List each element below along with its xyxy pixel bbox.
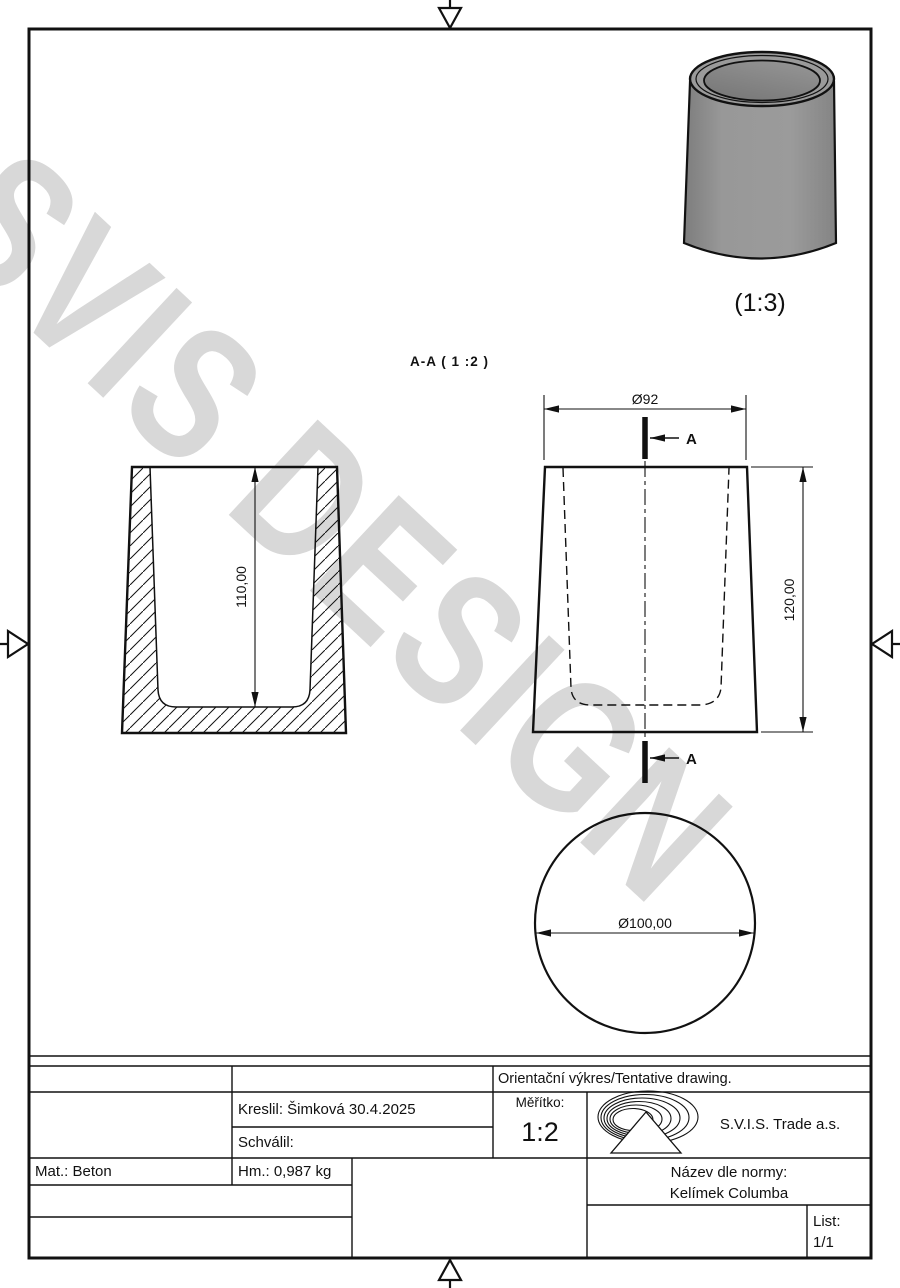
tentative-note: Orientační výkres/Tentative drawing. bbox=[498, 1066, 868, 1092]
sheet-label: List: bbox=[813, 1212, 868, 1232]
sheet-value: 1/1 bbox=[813, 1233, 868, 1253]
dim-bottom-diameter: Ø100,00 bbox=[536, 915, 754, 937]
front-view: A A Ø92 120,00 bbox=[533, 391, 813, 783]
material: Mat.: Beton bbox=[35, 1158, 225, 1185]
section-view: 110,00 bbox=[122, 467, 346, 733]
section-cut-line: A A bbox=[645, 417, 697, 783]
scale-value: 1:2 bbox=[494, 1112, 586, 1154]
company-name: S.V.I.S. Trade a.s. bbox=[695, 1092, 865, 1158]
svg-text:A: A bbox=[686, 431, 697, 448]
norm-name-label: Název dle normy: bbox=[587, 1162, 871, 1183]
svg-text:Ø100,00: Ø100,00 bbox=[618, 915, 672, 931]
drawing-sheet: SVIS DESIGN bbox=[0, 0, 900, 1288]
section-view-label: A-A ( 1 :2 ) bbox=[410, 354, 489, 369]
iso-view-3d: (1:3) bbox=[684, 52, 836, 317]
iso-scale-label: (1:3) bbox=[734, 289, 785, 317]
svg-text:Ø92: Ø92 bbox=[632, 391, 659, 407]
company-logo bbox=[598, 1091, 698, 1153]
centering-mark-left bbox=[0, 631, 29, 657]
drawn-by: Kreslil: Šimková 30.4.2025 bbox=[238, 1092, 490, 1127]
part-name: Kelímek Columba bbox=[587, 1183, 871, 1204]
centering-mark-right bbox=[871, 631, 900, 657]
svg-text:110,00: 110,00 bbox=[233, 566, 249, 608]
scale-label: Měřítko: bbox=[494, 1095, 586, 1111]
svg-text:A: A bbox=[686, 751, 697, 768]
dim-height: 120,00 bbox=[751, 467, 813, 732]
centering-mark-top bbox=[439, 0, 461, 29]
svg-text:120,00: 120,00 bbox=[781, 578, 797, 621]
bottom-view: Ø100,00 bbox=[535, 813, 755, 1033]
mass: Hm.: 0,987 kg bbox=[238, 1158, 350, 1185]
dim-inner-depth: 110,00 bbox=[233, 467, 259, 707]
approved-by: Schválil: bbox=[238, 1127, 490, 1158]
centering-mark-bottom bbox=[439, 1259, 461, 1288]
